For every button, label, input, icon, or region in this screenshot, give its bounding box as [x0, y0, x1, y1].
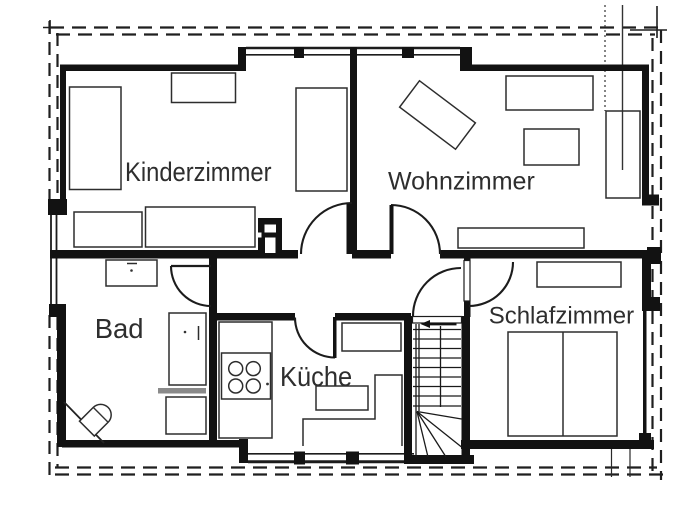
svg-text:Kinderzimmer: Kinderzimmer: [125, 158, 272, 188]
svg-text:Schlafzimmer: Schlafzimmer: [489, 303, 634, 330]
svg-text:Küche: Küche: [280, 361, 352, 392]
svg-text:Wohnzimmer: Wohnzimmer: [388, 168, 535, 196]
svg-text:Bad: Bad: [95, 313, 144, 344]
